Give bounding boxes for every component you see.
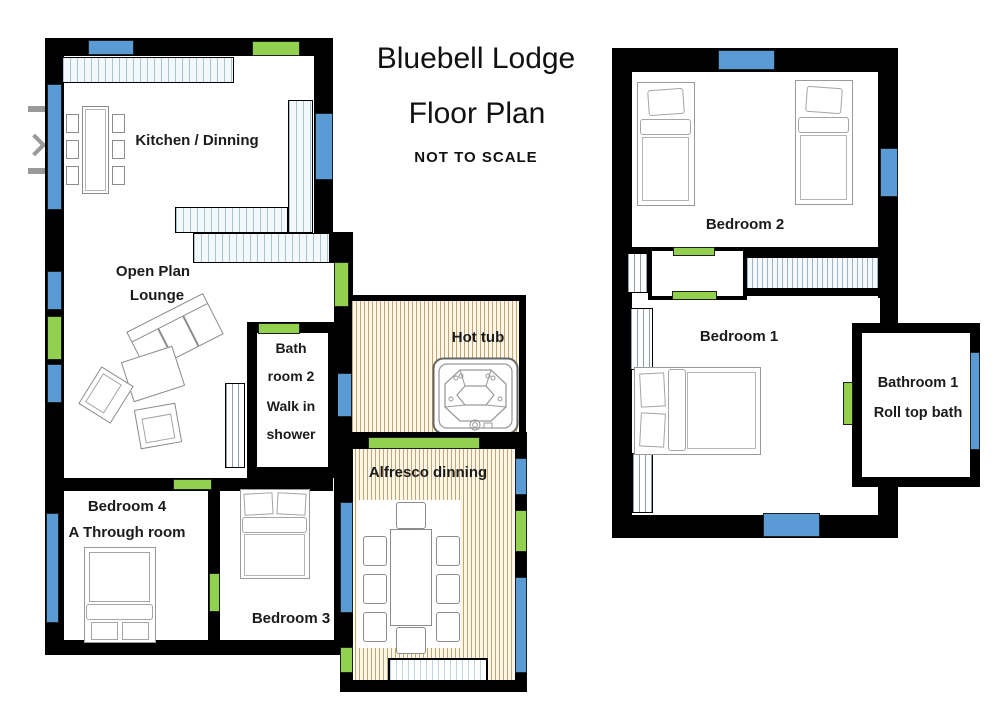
bed-duvet xyxy=(642,137,689,201)
window xyxy=(970,352,980,450)
window xyxy=(315,113,333,180)
deck-wall xyxy=(519,295,526,432)
bed-pillow xyxy=(647,88,685,116)
door xyxy=(47,316,62,360)
window xyxy=(47,271,62,310)
chair xyxy=(396,502,426,529)
bathroom2-label-line: Walk in xyxy=(267,399,316,413)
window xyxy=(46,513,59,623)
bed xyxy=(634,367,761,455)
sketch-tick xyxy=(28,168,45,174)
bathroom2-label-line: Bath xyxy=(275,341,306,355)
window xyxy=(718,50,775,70)
window xyxy=(340,502,353,613)
outdoor-table xyxy=(390,529,432,626)
window xyxy=(515,458,527,495)
hot-tub xyxy=(432,357,519,435)
chair xyxy=(112,114,125,133)
door xyxy=(209,573,220,612)
bathroom2-label-line: shower xyxy=(266,427,315,441)
window xyxy=(88,40,134,55)
kitchen-counter xyxy=(288,100,313,233)
bed-band xyxy=(668,369,686,451)
window xyxy=(880,148,898,197)
chair xyxy=(436,536,460,566)
bed-pillow xyxy=(276,492,306,515)
dining-table xyxy=(82,106,109,194)
chair xyxy=(66,140,79,159)
sofa-divider xyxy=(182,316,198,346)
bed xyxy=(795,80,853,205)
plan-title: Bluebell Lodge xyxy=(377,42,576,76)
kitchen-label: Kitchen / Dinning xyxy=(135,133,258,148)
wall-opening xyxy=(866,298,880,323)
bed-pillow xyxy=(639,412,666,447)
kitchen-counter xyxy=(175,207,288,233)
dining-table-inner xyxy=(85,109,106,191)
wall-segment xyxy=(612,48,632,538)
window xyxy=(47,84,62,210)
chair xyxy=(363,536,387,566)
door xyxy=(515,510,527,552)
chair xyxy=(112,166,125,185)
bedroom1-label: Bedroom 1 xyxy=(700,329,778,344)
door xyxy=(334,262,349,307)
bed-pillow xyxy=(243,492,273,515)
armchair xyxy=(134,403,182,450)
chair xyxy=(66,166,79,185)
chair xyxy=(66,114,79,133)
sketch-chevron xyxy=(24,134,47,157)
bed-duvet xyxy=(800,135,847,200)
door xyxy=(252,41,300,56)
window xyxy=(515,577,527,673)
bed-pillow xyxy=(805,86,843,114)
bathroom2-label-line: room 2 xyxy=(268,369,315,383)
bed-band xyxy=(242,517,307,533)
deck-wall xyxy=(352,295,525,301)
lounge-label-1: Open Plan xyxy=(116,264,190,279)
bed-pillow xyxy=(122,622,149,640)
chair xyxy=(363,612,387,642)
radiator-strip xyxy=(627,253,648,293)
door xyxy=(258,323,300,334)
radiator-strip xyxy=(630,308,653,370)
lounge-label-2: Lounge xyxy=(130,288,184,303)
bed-pillow xyxy=(91,622,118,640)
radiator-strip xyxy=(632,453,653,513)
bed-band xyxy=(86,604,153,620)
deck-gate xyxy=(368,437,480,449)
bed-duvet xyxy=(687,372,756,449)
door xyxy=(843,382,853,425)
bedroom4-label: Bedroom 4 xyxy=(88,499,166,514)
bedroom4-sublabel: A Through room xyxy=(69,525,186,540)
bed xyxy=(84,547,156,643)
door xyxy=(173,479,212,490)
bench xyxy=(388,658,488,682)
bed-band xyxy=(640,119,691,135)
bed-duvet xyxy=(89,552,150,602)
bedroom2-label: Bedroom 2 xyxy=(706,217,784,232)
plan-scale-note: NOT TO SCALE xyxy=(414,149,537,166)
sketch-tick xyxy=(28,106,45,112)
bedroom3-label: Bedroom 3 xyxy=(252,611,330,626)
hot-tub-label: Hot tub xyxy=(452,330,504,345)
chair xyxy=(436,574,460,604)
wall-opening xyxy=(862,489,878,514)
chair xyxy=(112,140,125,159)
bed-duvet xyxy=(244,534,305,576)
armchair-seat xyxy=(85,373,122,413)
stairs xyxy=(747,255,878,296)
kitchen-counter xyxy=(62,57,234,83)
radiator-strip xyxy=(225,383,245,468)
bed-pillow xyxy=(639,372,666,407)
kitchen-counter xyxy=(193,233,330,263)
wall-segment xyxy=(612,515,898,538)
floor-plan-canvas: Bluebell Lodge Floor Plan NOT TO SCALE xyxy=(0,0,1000,707)
armchair-seat xyxy=(141,414,175,444)
bed xyxy=(240,489,310,579)
wall-segment xyxy=(208,478,220,655)
chair xyxy=(436,612,460,642)
window xyxy=(337,373,352,417)
bathroom1-sublabel: Roll top bath xyxy=(874,406,963,421)
window xyxy=(47,364,62,403)
chair xyxy=(396,627,426,654)
chair xyxy=(363,574,387,604)
door xyxy=(340,647,353,673)
plan-subtitle: Floor Plan xyxy=(409,97,546,131)
door xyxy=(673,247,715,256)
bed-band xyxy=(798,117,849,133)
window xyxy=(763,513,820,537)
bed xyxy=(637,82,695,206)
bathroom1-label: Bathroom 1 xyxy=(878,376,959,391)
door xyxy=(672,291,717,300)
alfresco-label: Alfresco dinning xyxy=(369,465,487,480)
